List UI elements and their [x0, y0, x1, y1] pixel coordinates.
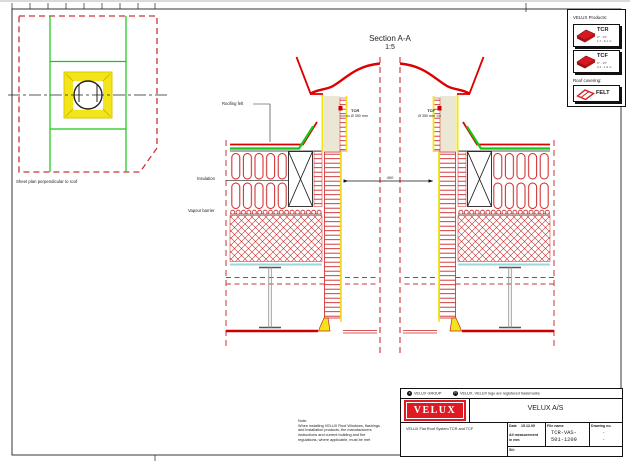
section-scale: 1:5 — [340, 44, 440, 51]
title-block: cVELUX GROUP RVELUX, VELUX logo are regi… — [400, 388, 623, 457]
felt-icon — [576, 88, 595, 101]
velux-products-legend: VELUX Products: TCR 0° - 15° 1.7 - 6.1 m… — [567, 9, 626, 107]
sun-tunnel-tube — [325, 152, 342, 322]
file-label: File name — [547, 424, 564, 428]
covering-box-felt: FELT — [573, 85, 620, 102]
installation-note: Note: When installing VELUX Roof Windows… — [298, 419, 380, 443]
product-tcr-sub2: 1.7 - 6.1 m — [597, 39, 611, 43]
label-tcr-diameter: Ø 350 mm — [351, 114, 368, 118]
velux-logo: VELUX — [404, 400, 466, 421]
drawing-no-line2: - — [603, 437, 605, 442]
legend-title: VELUX Products: — [573, 15, 607, 20]
covering-code-felt: FELT — [596, 90, 610, 96]
product-box-tcf: TCF 0° - 15° 0.4 - 1.9 m — [573, 50, 620, 73]
steel-beam — [259, 268, 281, 328]
vapour-barrier-hatch — [230, 210, 322, 216]
ceiling-ring — [343, 331, 377, 334]
copyright-icon: c — [407, 391, 412, 396]
plan-caption: Sheet plan perpendicular to roof — [16, 179, 77, 184]
timber-blocking — [289, 152, 313, 207]
drawing-description: VELUX Flat Roof System TCR and TCF — [406, 427, 504, 431]
label-tcf: TCF — [405, 108, 435, 113]
deck-crosshatch — [230, 216, 322, 262]
flat-roof-window-icon — [576, 28, 596, 43]
product-code-tcr: TCR — [597, 27, 609, 33]
fixing-marker — [339, 106, 343, 111]
trademark-row: RVELUX, VELUX logo are registered tradem… — [453, 391, 540, 396]
trademark-text: VELUX, VELUX logo are registered tradema… — [460, 392, 540, 396]
insulation-hatch — [230, 152, 288, 182]
company-name: VELUX A/S — [469, 405, 622, 412]
dimension-value: 400 — [380, 175, 400, 180]
measurement-note: All measurement — [509, 433, 538, 437]
copyright-text: VELUX GROUP — [414, 392, 441, 396]
copyright-row: cVELUX GROUP — [407, 391, 441, 396]
label-insulation: Insulation — [197, 176, 215, 181]
dome-curve — [310, 64, 380, 95]
product-tcf-sub2: 0.4 - 1.9 m — [597, 65, 611, 69]
label-tcf-diameter: Ø 350 mm — [403, 114, 435, 118]
section-left-half — [226, 57, 380, 346]
curb-body — [324, 96, 340, 151]
section-right-half — [400, 57, 554, 346]
date-label: Date — [509, 424, 517, 428]
drawing-no-label: Drawing no. — [591, 424, 612, 428]
section-title: Section A-A — [340, 34, 440, 43]
center-break-lines — [380, 57, 400, 355]
plan-view — [8, 16, 170, 172]
drawing-sheet: Sheet plan perpendicular to roof Section… — [0, 0, 630, 462]
measurement-note-2: in mm — [509, 438, 520, 442]
registered-icon: R — [453, 391, 458, 396]
label-vapour-barrier: Vapour barrier — [188, 208, 214, 213]
diffuser — [319, 318, 331, 331]
drawing-no-line1: - — [603, 430, 605, 435]
product-box-tcr: TCR 0° - 15° 1.7 - 6.1 m — [573, 24, 620, 47]
product-code-tcf: TCF — [597, 53, 608, 59]
dome-cut-edge — [297, 57, 311, 94]
roof-covering-title: Roof covering: — [573, 78, 601, 83]
flat-roof-window-icon — [576, 54, 596, 69]
file-name-line2: 501-1209 — [551, 437, 577, 443]
note-line: regulations, where applicable, must be m… — [298, 438, 380, 443]
file-name-line1: TCR-VAS- — [551, 430, 577, 436]
velux-logo-text: VELUX — [406, 402, 464, 419]
label-tcr: TCR — [351, 108, 359, 113]
date-value: 15.12.09 — [521, 424, 535, 428]
label-roofing-felt: Roofing felt — [222, 101, 243, 106]
path-label: Sti: — [509, 448, 515, 452]
